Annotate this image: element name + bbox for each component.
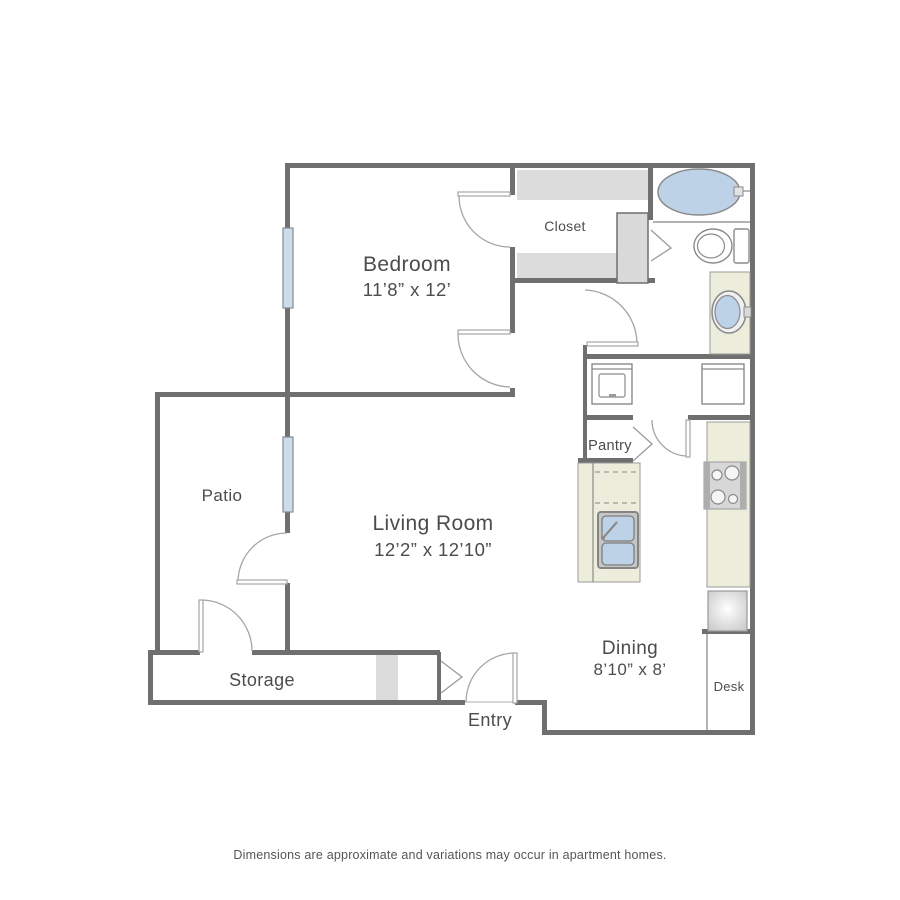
dryer xyxy=(702,364,744,404)
patio-label: Patio xyxy=(202,486,243,505)
burner xyxy=(729,495,738,504)
burner xyxy=(711,490,725,504)
entry-door xyxy=(466,653,517,703)
washer-latch xyxy=(609,394,616,397)
bedroom-label: Bedroom xyxy=(363,253,451,276)
toilet-tank xyxy=(734,229,749,263)
bedroom-window xyxy=(283,228,293,308)
kitchen-sink-basin-bottom xyxy=(602,543,634,565)
storage-utility-block xyxy=(376,655,398,700)
bedroom-dims: 11’8” x 12’ xyxy=(363,279,451,300)
living-room-dims: 12’2” x 12’10” xyxy=(374,539,492,560)
living-room-label: Living Room xyxy=(372,512,493,535)
pantry-folding-door xyxy=(633,427,652,461)
kitchen-faucet-base xyxy=(601,536,605,540)
closet-label: Closet xyxy=(544,218,585,234)
refrigerator xyxy=(708,591,747,631)
disclaimer-text: Dimensions are approximate and variation… xyxy=(0,848,900,862)
stove-edge-left xyxy=(704,462,710,509)
pantry-label: Pantry xyxy=(588,438,632,454)
burner xyxy=(712,470,722,480)
desk-label: Desk xyxy=(714,679,745,694)
stove xyxy=(704,462,746,509)
vanity-sink xyxy=(715,296,740,329)
laundry-appliances xyxy=(592,364,744,404)
closet-shelf-bottom xyxy=(517,253,617,278)
closet-shelf-top xyxy=(517,170,648,200)
dining-dims: 8’10” x 8’ xyxy=(594,660,667,679)
entry-label: Entry xyxy=(468,710,512,730)
bathroom-fixtures xyxy=(658,169,751,354)
storage-door xyxy=(199,600,252,652)
burner xyxy=(725,466,739,480)
kitchen-sink-basin-top xyxy=(602,516,634,541)
closet-wall-block xyxy=(617,213,648,283)
closet-folding-door xyxy=(651,230,671,261)
dining-label: Dining xyxy=(602,638,658,659)
bedroom-hall-door xyxy=(458,330,510,387)
floorplan-canvas: Bedroom 11’8” x 12’ Living Room 12’2” x … xyxy=(0,0,900,900)
stove-body xyxy=(704,462,746,509)
washer-door xyxy=(599,374,625,397)
storage-closet-door xyxy=(441,661,462,693)
floorplan-svg: Bedroom 11’8” x 12’ Living Room 12’2” x … xyxy=(0,0,900,900)
living-room-window xyxy=(283,437,293,512)
laundry-door xyxy=(652,420,690,457)
bedroom-closet-door xyxy=(458,192,510,247)
bathroom-door xyxy=(585,290,638,346)
patio-door xyxy=(237,533,287,584)
bathtub xyxy=(658,169,740,215)
vanity-faucet xyxy=(744,307,751,317)
stove-edge-right xyxy=(740,462,746,509)
storage-label: Storage xyxy=(229,670,295,690)
bathtub-faucet xyxy=(734,187,743,196)
